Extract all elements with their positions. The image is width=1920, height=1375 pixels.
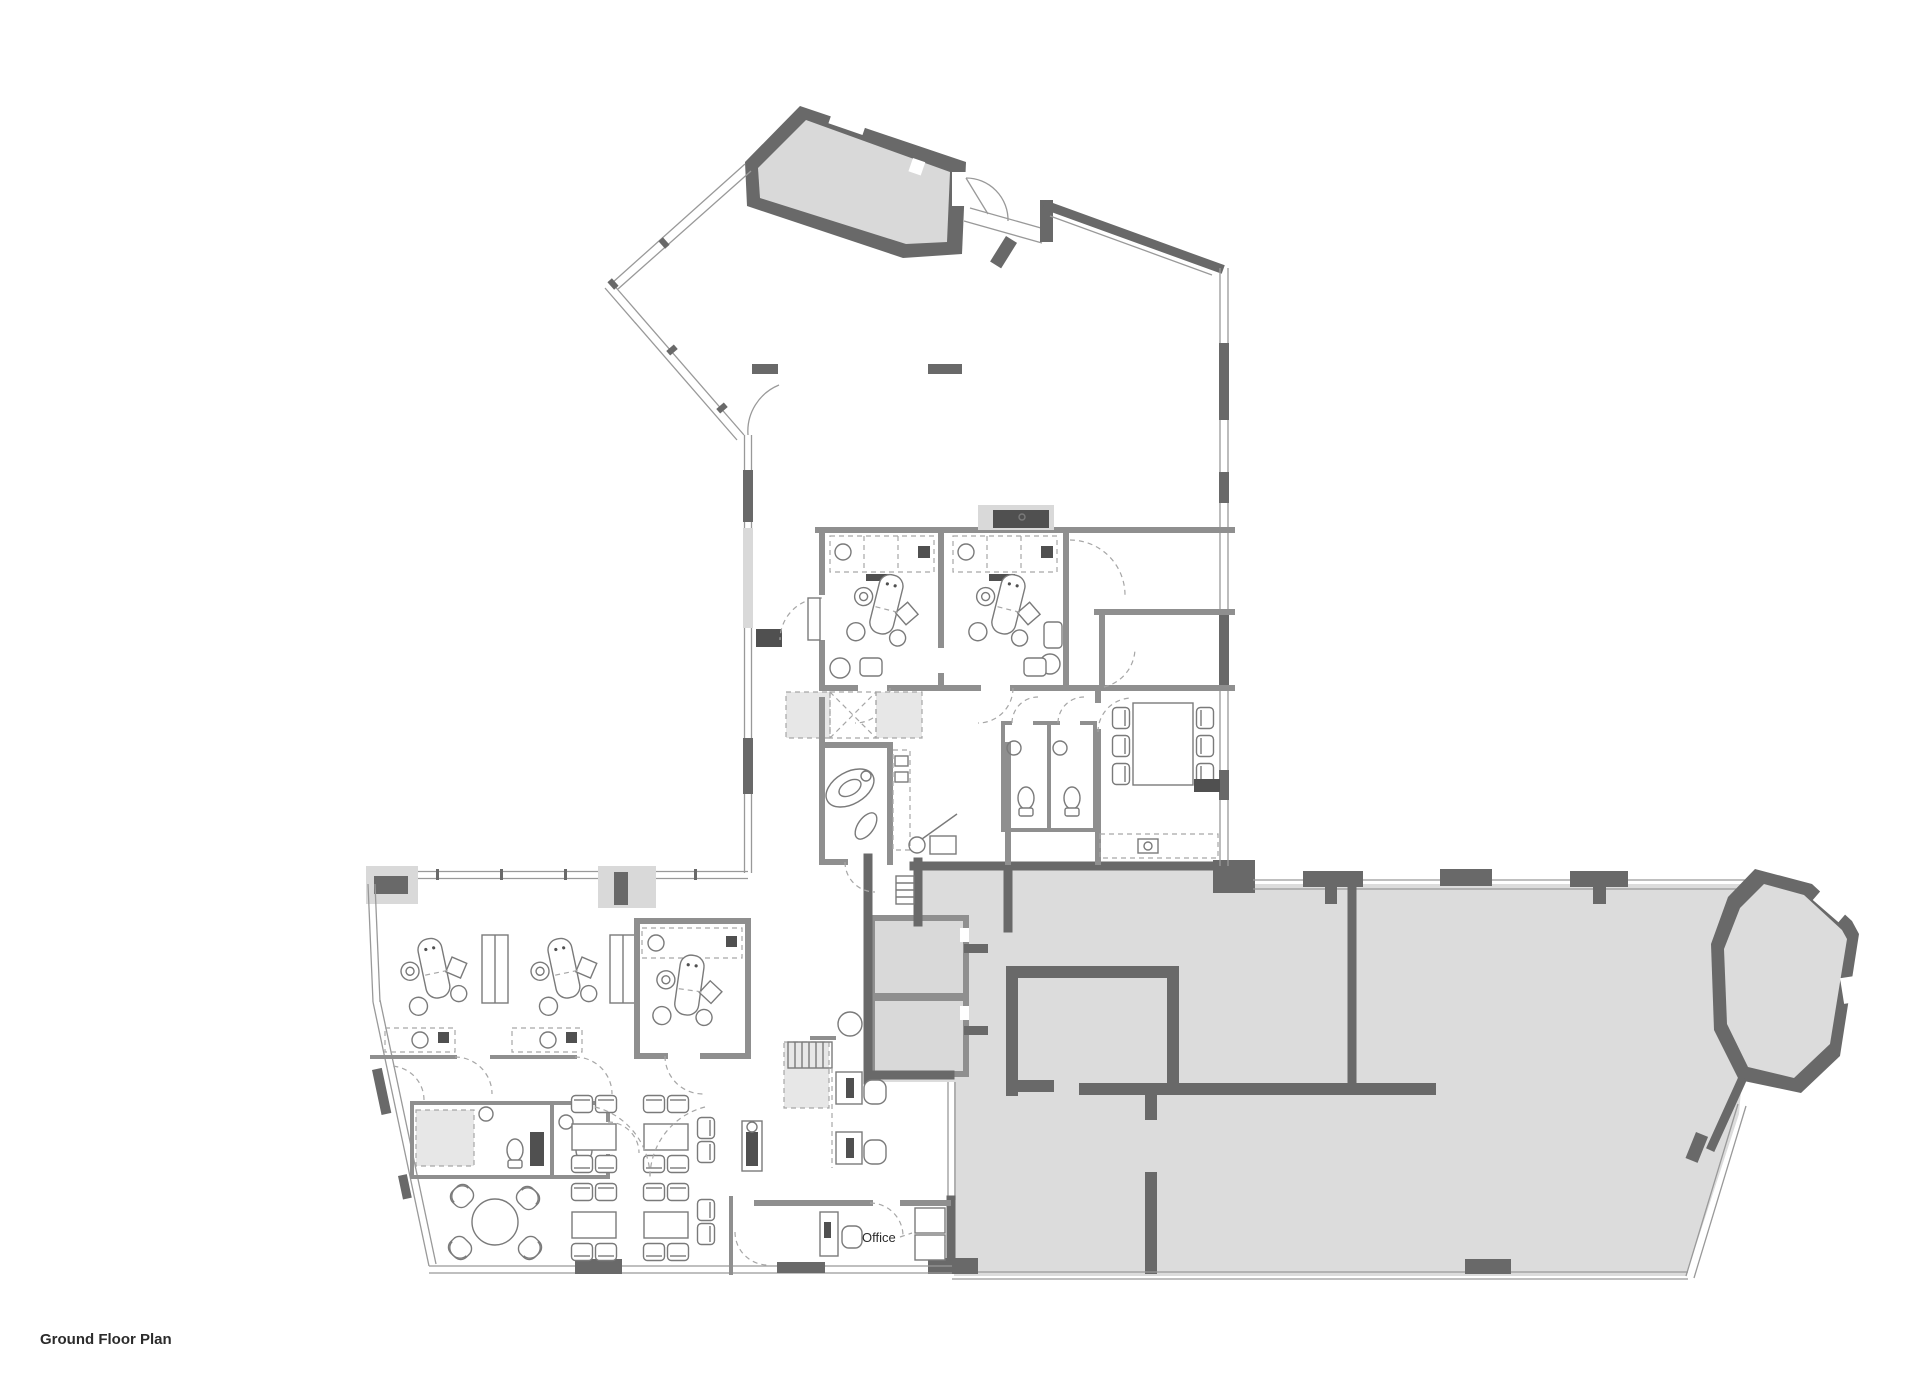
surgery-room-1 <box>830 536 934 678</box>
surgery-room-2 <box>953 536 1062 676</box>
shower-area <box>416 1110 474 1166</box>
entrance-vestibule <box>964 200 1053 268</box>
reception-desk-2 <box>836 1132 886 1164</box>
staff-room <box>1098 688 1220 862</box>
page: Office Ground Floor Plan <box>0 0 1920 1375</box>
kitchen-counter <box>1100 834 1218 858</box>
open-treatment-bays <box>372 932 637 1094</box>
meeting-table <box>1133 703 1193 785</box>
office-desk <box>820 1212 862 1256</box>
sterilisation-room <box>893 745 1008 862</box>
surgery-room-3 <box>637 921 748 1094</box>
lobby-skylights <box>786 692 922 738</box>
radiator <box>1194 779 1220 792</box>
northeast-wall <box>1048 206 1219 275</box>
office-room: Office <box>757 1203 948 1260</box>
water-cooler <box>742 1121 762 1171</box>
west-glazed-wall <box>605 164 782 873</box>
atrium-piers <box>752 364 962 374</box>
office-label: Office <box>862 1230 896 1245</box>
stair-small <box>896 876 914 904</box>
radiator <box>756 629 782 647</box>
upper-pavilion <box>745 106 1008 258</box>
east-window-wall <box>1219 268 1229 866</box>
wc-block <box>1003 697 1095 830</box>
round-table <box>472 1199 518 1245</box>
floor-plan: Office Ground Floor Plan <box>0 0 1920 1375</box>
shell-tenancy-area <box>868 858 1859 1279</box>
round-basin <box>838 1012 862 1036</box>
plan-title: Ground Floor Plan <box>40 1331 172 1348</box>
